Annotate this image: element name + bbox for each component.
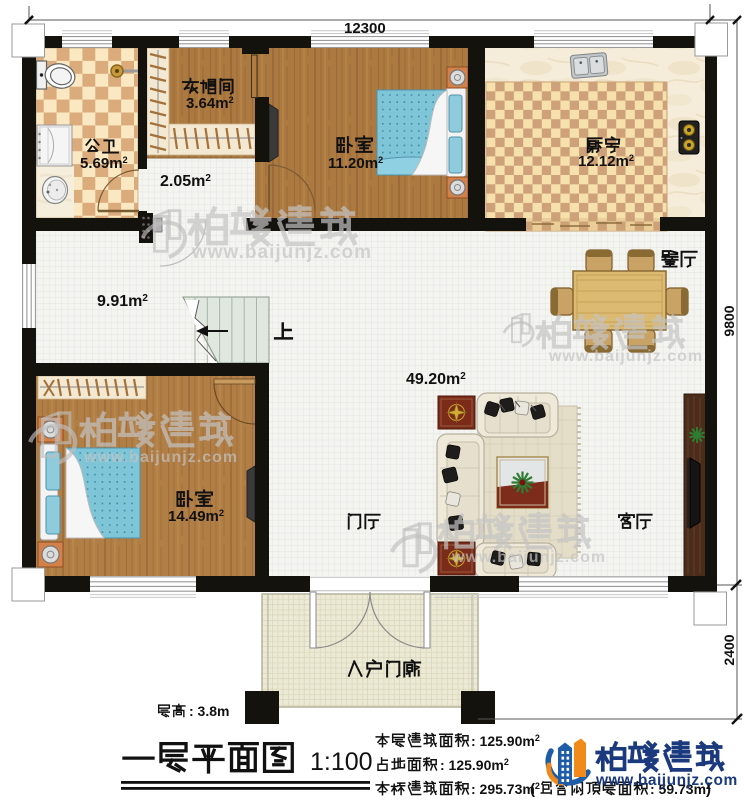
svg-text:14.49m2: 14.49m2 xyxy=(168,508,224,525)
svg-text:5.69m2: 5.69m2 xyxy=(80,155,128,172)
svg-text:: 3.8m: : 3.8m xyxy=(189,703,229,719)
svg-text:www.baijunjz.com: www.baijunjz.com xyxy=(595,772,738,789)
svg-text:2.05m2: 2.05m2 xyxy=(160,173,211,190)
svg-text:49.20m2: 49.20m2 xyxy=(406,371,466,388)
svg-text:1:100: 1:100 xyxy=(310,748,373,776)
svg-text:12300: 12300 xyxy=(344,20,386,37)
svg-text:www.baijunjz.com: www.baijunjz.com xyxy=(83,449,238,466)
svg-text:: 125.90m2: : 125.90m2 xyxy=(471,733,540,749)
svg-text:www.baijunjz.com: www.baijunjz.com xyxy=(191,242,372,263)
svg-text:11.20m2: 11.20m2 xyxy=(328,155,383,172)
svg-text:2400: 2400 xyxy=(721,634,737,665)
svg-text:9.91m2: 9.91m2 xyxy=(97,293,148,310)
svg-text:www.baijunjz.com: www.baijunjz.com xyxy=(548,348,703,365)
svg-text:: 125.90m2: : 125.90m2 xyxy=(440,757,509,773)
svg-text:www.baijunjz.com: www.baijunjz.com xyxy=(451,549,606,566)
svg-text:3.64m2: 3.64m2 xyxy=(186,95,234,112)
svg-text:12.12m2: 12.12m2 xyxy=(578,153,634,170)
svg-text:9800: 9800 xyxy=(721,305,737,336)
svg-text:(: ( xyxy=(530,781,535,798)
